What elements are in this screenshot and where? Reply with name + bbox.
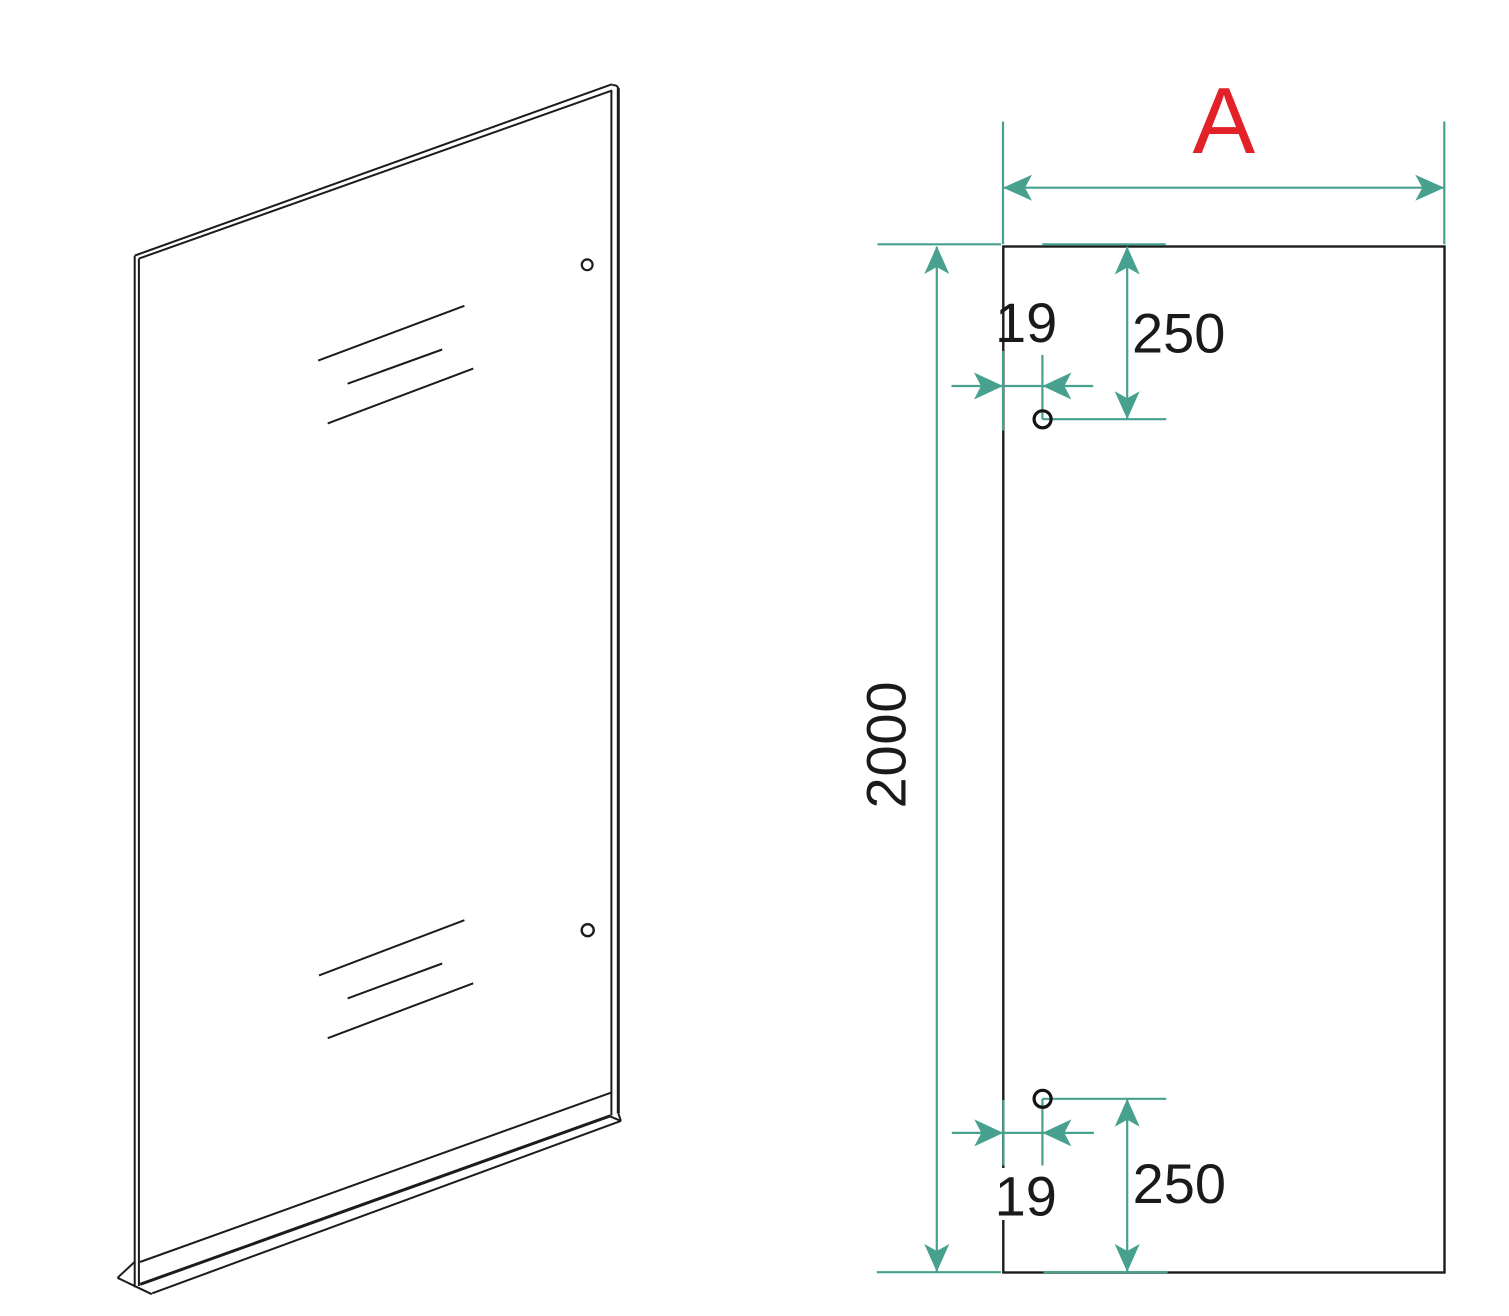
svg-text:2000: 2000 (855, 681, 918, 809)
svg-text:250: 250 (1133, 1152, 1226, 1215)
svg-text:19: 19 (995, 1164, 1057, 1227)
svg-text:19: 19 (995, 291, 1057, 354)
svg-text:250: 250 (1132, 301, 1225, 364)
svg-text:A: A (1193, 68, 1256, 173)
